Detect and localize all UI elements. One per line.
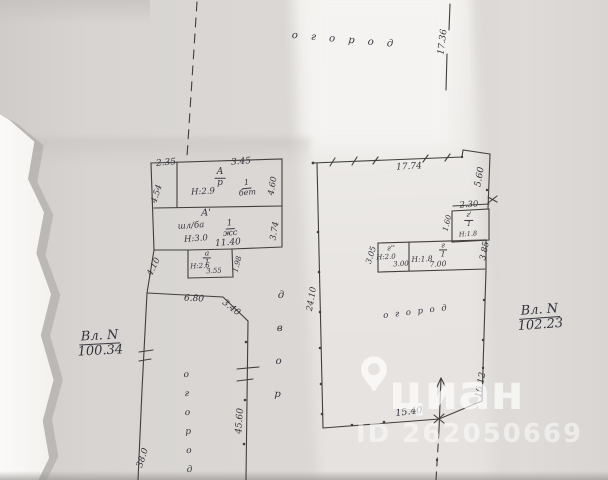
cian-pin-icon <box>360 355 388 392</box>
watermark-id: ID 262050669 <box>356 421 583 447</box>
cian-watermark: циан ID 262050669 <box>0 0 608 480</box>
scanned-plan-page: о г о р о д 17.36 2.35 3.45 А р Н:2.9 1 … <box>0 0 608 480</box>
watermark-brand: циан <box>389 369 524 417</box>
